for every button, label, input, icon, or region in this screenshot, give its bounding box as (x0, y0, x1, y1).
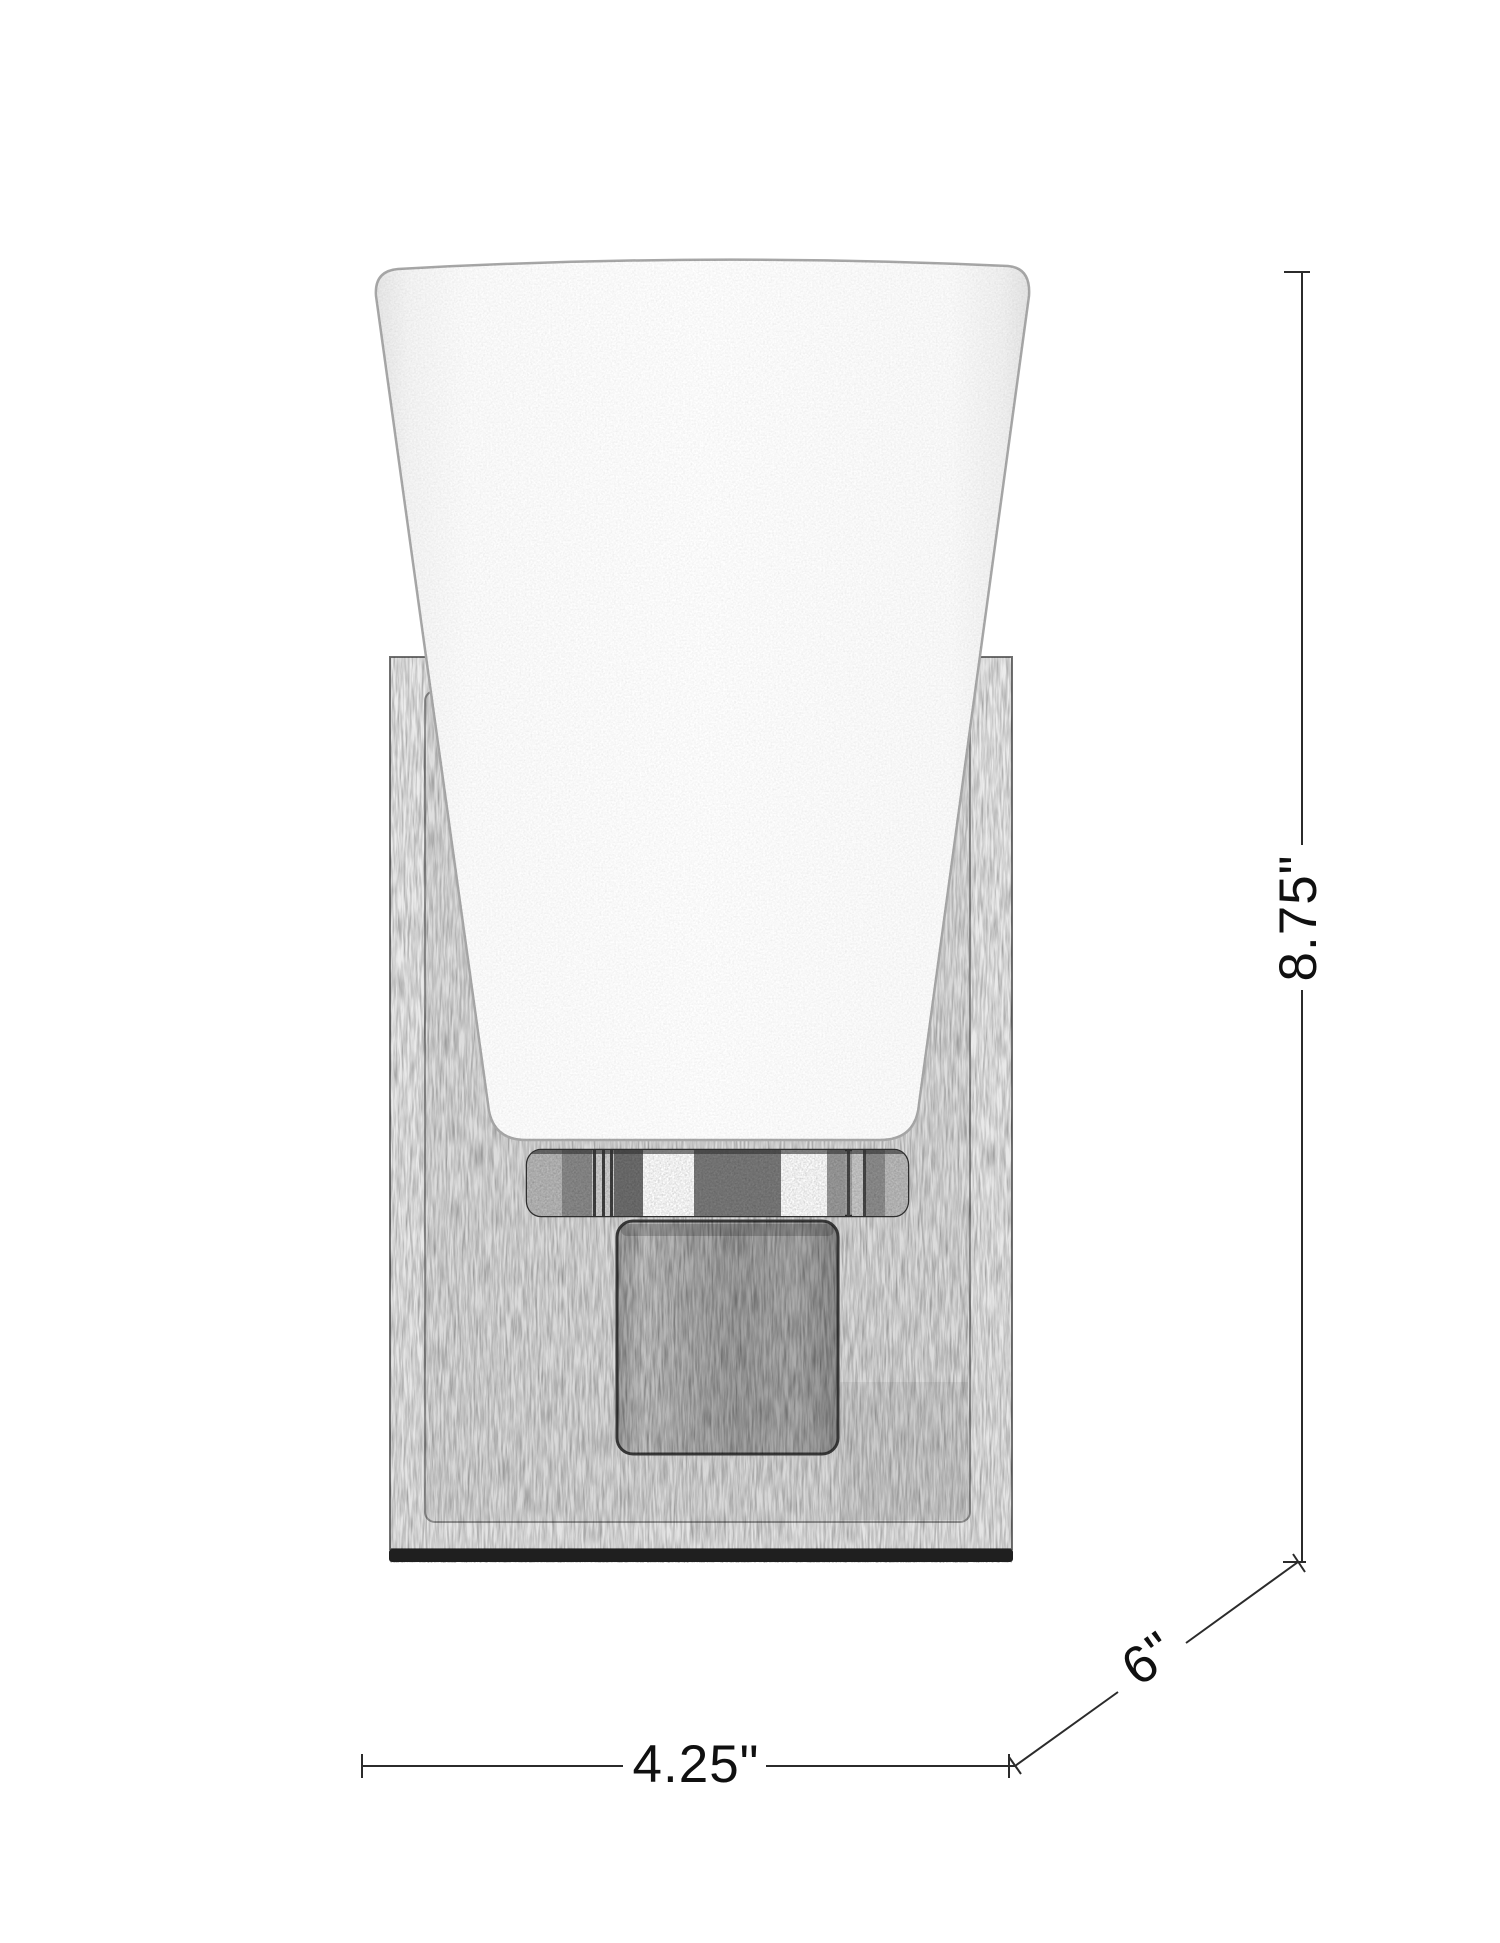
depth-dimension-label: 6" (1111, 1620, 1186, 1697)
backplate-bottom-edge (389, 1549, 1013, 1562)
arm-block (617, 1221, 838, 1454)
width-dimension-label: 4.25" (633, 1735, 760, 1794)
height-dimension-label: 8.75" (1269, 855, 1328, 982)
fitter-collar (527, 1150, 908, 1216)
dimension-drawing-page: 4.25" 8.75" 6" (0, 0, 1500, 1943)
sconce-dimension-diagram: 4.25" 8.75" 6" (0, 0, 1500, 1943)
